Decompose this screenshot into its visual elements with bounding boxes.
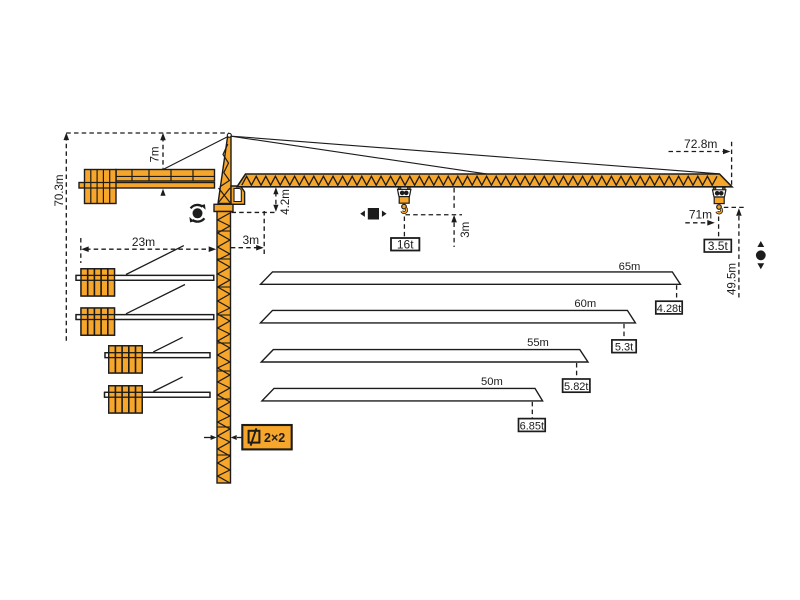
svg-text:4.2m: 4.2m [280,189,292,215]
svg-text:50m: 50m [481,376,503,388]
svg-text:72.8m: 72.8m [684,137,717,151]
svg-text:65m: 65m [619,261,641,273]
svg-text:71m: 71m [689,208,712,222]
svg-text:7m: 7m [149,147,161,163]
svg-text:5.82t: 5.82t [564,381,588,393]
svg-text:3.5t: 3.5t [708,239,729,253]
svg-text:23m: 23m [132,235,155,249]
svg-text:55m: 55m [527,337,549,349]
svg-text:3m: 3m [242,233,259,247]
svg-text:4.28t: 4.28t [657,303,681,315]
svg-text:16t: 16t [397,238,414,252]
svg-text:70.3m: 70.3m [54,175,66,207]
svg-text:60m: 60m [574,298,596,310]
svg-text:3m: 3m [460,222,472,238]
svg-text:49.5m: 49.5m [726,263,738,295]
svg-text:5.3t: 5.3t [615,342,633,354]
svg-text:2×2: 2×2 [264,431,285,445]
svg-text:6.85t: 6.85t [520,420,544,432]
